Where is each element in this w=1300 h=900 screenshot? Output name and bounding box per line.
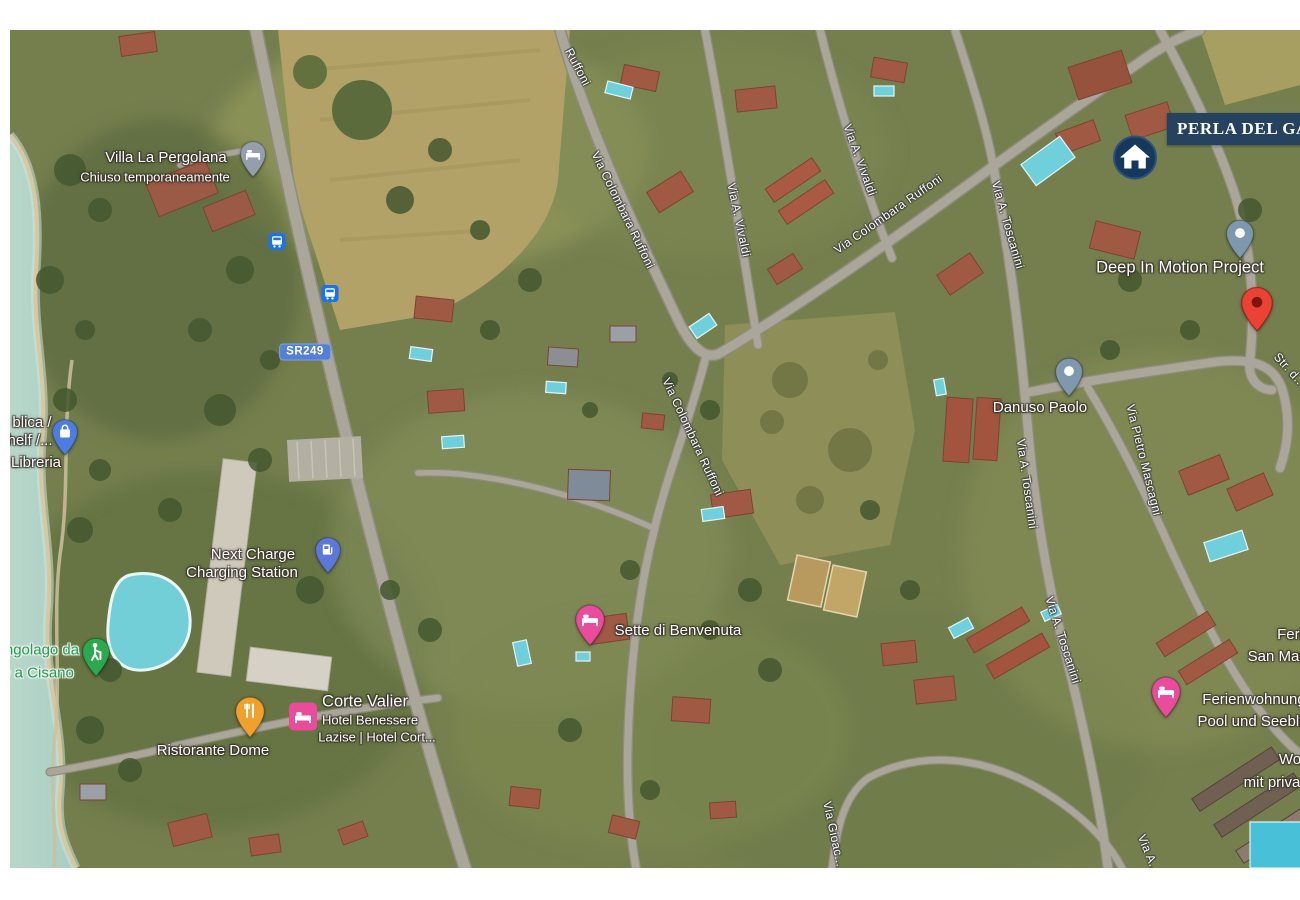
poi-label-libreria-line1[interactable]: blica / — [12, 414, 51, 432]
place-pin-icon[interactable] — [1226, 220, 1254, 265]
poi-label-ferienwohnung-line2[interactable]: Pool und Seebli — [1197, 713, 1300, 731]
bus-stop-icon[interactable] — [269, 233, 286, 255]
page: Ruffoni Via Colombara Ruffoni Via A. Viv… — [0, 0, 1300, 900]
red-destination-pin-icon[interactable] — [1241, 287, 1273, 338]
poi-label-wohnung-line1[interactable]: Wo — [1279, 751, 1300, 769]
poi-label-libreria-line2[interactable]: helf /... — [10, 432, 53, 450]
poi-label-corte-valier[interactable]: Corte Valier — [322, 693, 408, 712]
lodging-pin-icon[interactable] — [1151, 677, 1181, 724]
route-shield-sr249: SR249 — [279, 344, 331, 361]
bookshop-pin-icon[interactable] — [52, 419, 78, 461]
poi-label-villa-la-pergolana[interactable]: Villa La Pergolana — [105, 149, 226, 167]
poi-label-lungolago-line1[interactable]: ngolago da — [10, 642, 79, 659]
perla-del-garda-banner[interactable]: PERLA DEL GARDA — [1167, 113, 1300, 145]
poi-sub-corte-valier-2: Lazise | Hotel Cort... — [318, 730, 436, 745]
place-pin-icon[interactable] — [1055, 358, 1083, 403]
poi-status-villa-la-pergolana: Chiuso temporaneamente — [80, 170, 230, 185]
poi-label-wohnung-line2[interactable]: mit priva — [1244, 774, 1300, 792]
hiking-trail-pin-icon[interactable] — [82, 638, 110, 683]
hotel-square-icon[interactable] — [289, 703, 317, 736]
poi-label-sette-di-benvenuta[interactable]: Sette di Benvenuta — [615, 622, 742, 640]
house-marker-icon[interactable] — [1112, 135, 1158, 186]
lodging-pin-icon[interactable] — [575, 605, 605, 652]
poi-label-lungolago-line2[interactable]: e a Cisano — [10, 665, 74, 682]
bus-stop-icon[interactable] — [322, 285, 339, 307]
poi-label-next-charge-line1[interactable]: Next Charge — [211, 546, 295, 564]
charging-station-pin-icon[interactable] — [315, 537, 341, 579]
poi-label-ferien-san-line2[interactable]: San Mar — [1248, 648, 1300, 666]
lodging-pin-icon[interactable] — [240, 141, 266, 183]
restaurant-pin-icon[interactable] — [235, 697, 265, 744]
satellite-map[interactable]: Ruffoni Via Colombara Ruffoni Via A. Viv… — [10, 30, 1300, 868]
poi-label-ristorante-dome[interactable]: Ristorante Dome — [157, 742, 270, 760]
poi-label-ferienwohnung-line1[interactable]: Ferienwohnung — [1202, 691, 1300, 709]
poi-label-ferien-san-line1[interactable]: Feri — [1277, 626, 1300, 644]
poi-label-next-charge-line2[interactable]: Charging Station — [186, 564, 298, 582]
poi-sub-corte-valier-1: Hotel Benessere — [322, 713, 418, 728]
